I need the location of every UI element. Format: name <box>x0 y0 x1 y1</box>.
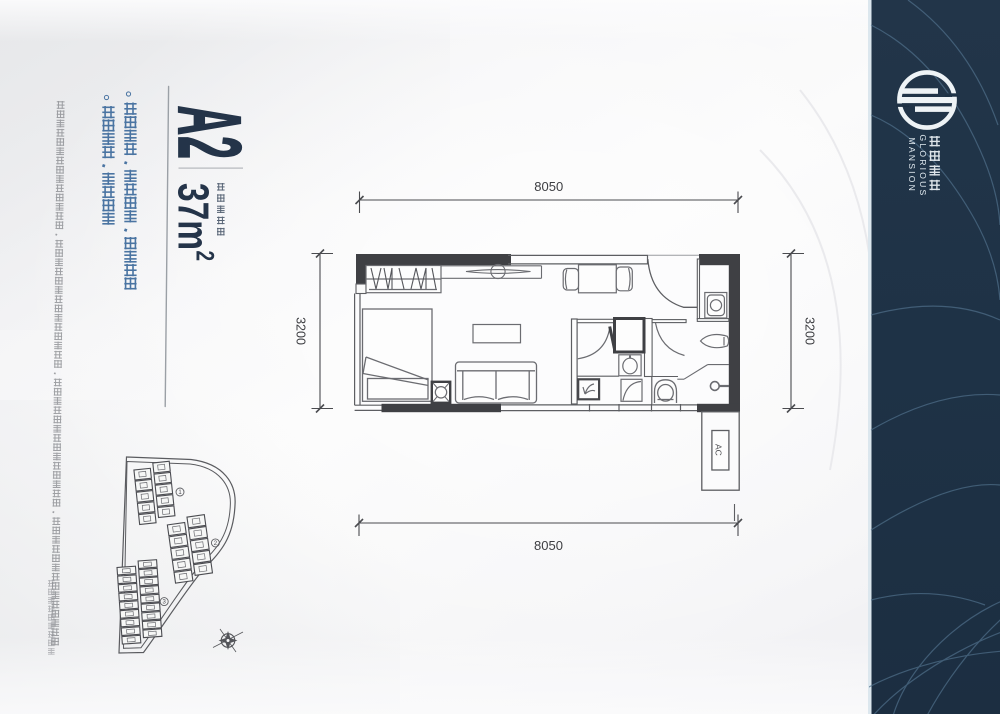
svg-text:8050: 8050 <box>534 179 563 194</box>
svg-text:2: 2 <box>191 251 219 262</box>
svg-text:MANSION: MANSION <box>907 138 917 194</box>
svg-text:3200: 3200 <box>803 317 817 345</box>
svg-text:A2: A2 <box>160 106 260 160</box>
svg-text:8050: 8050 <box>534 538 563 553</box>
svg-text:37m: 37m <box>168 183 216 250</box>
svg-text:AC: AC <box>714 444 724 456</box>
svg-text:3200: 3200 <box>294 317 308 345</box>
svg-text:GLORIOUS: GLORIOUS <box>918 135 928 198</box>
